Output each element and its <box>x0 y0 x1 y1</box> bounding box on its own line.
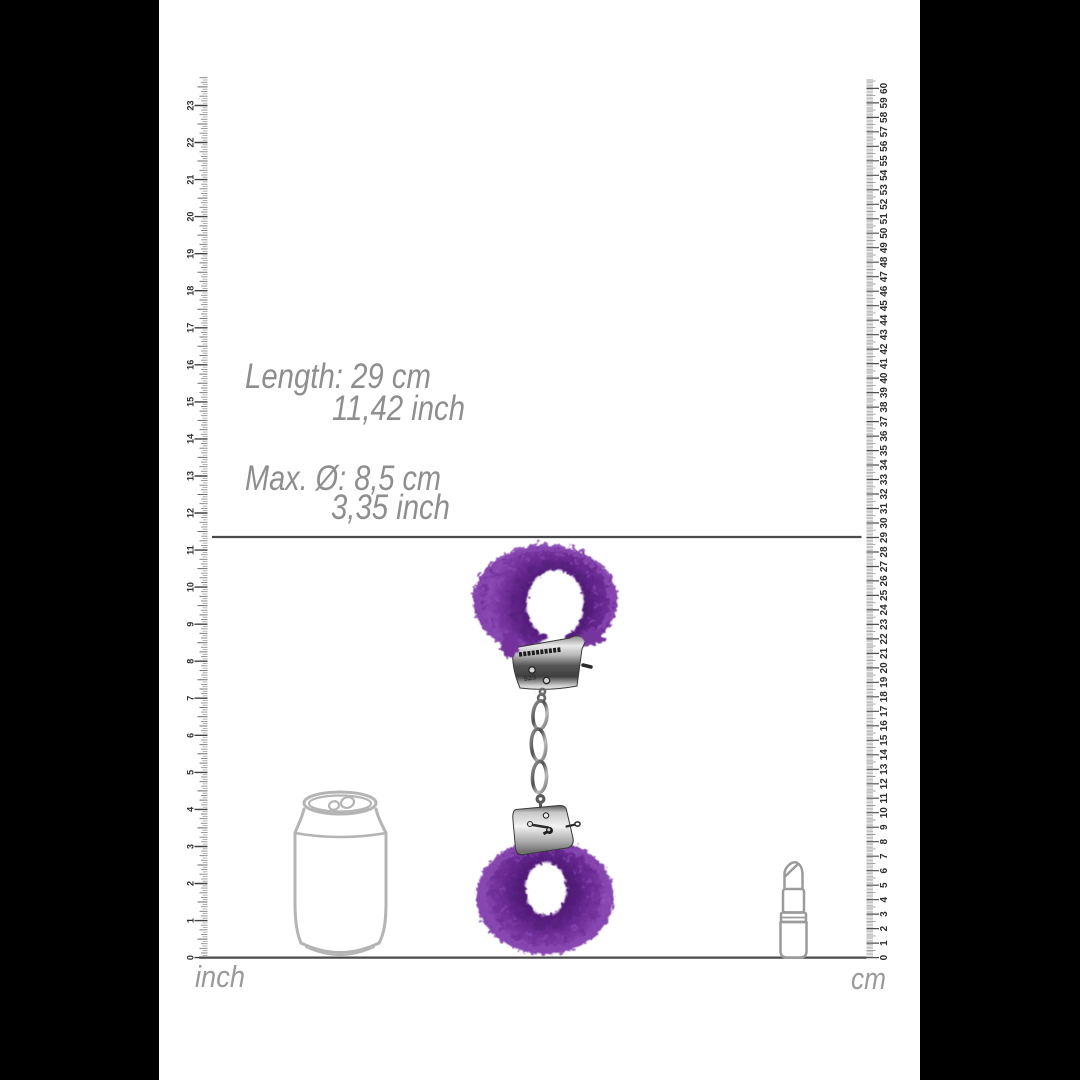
svg-text:11: 11 <box>879 792 890 803</box>
svg-text:53: 53 <box>879 184 890 196</box>
svg-text:42: 42 <box>879 343 890 355</box>
svg-text:4: 4 <box>186 807 196 812</box>
svg-text:23: 23 <box>186 100 196 110</box>
svg-text:15: 15 <box>879 734 890 746</box>
svg-text:3: 3 <box>186 844 196 849</box>
svg-text:2: 2 <box>879 925 890 931</box>
svg-text:48: 48 <box>879 256 890 268</box>
svg-text:20: 20 <box>879 662 890 674</box>
svg-text:59: 59 <box>879 97 890 109</box>
svg-text:23: 23 <box>879 618 890 630</box>
svg-text:0: 0 <box>879 954 890 960</box>
svg-text:40: 40 <box>879 372 890 384</box>
svg-text:20: 20 <box>186 212 196 222</box>
svg-text:6: 6 <box>879 867 890 873</box>
svg-text:57: 57 <box>879 126 890 138</box>
svg-text:11,42 inch: 11,42 inch <box>332 389 465 428</box>
svg-text:22: 22 <box>186 137 196 147</box>
svg-text:38: 38 <box>879 401 890 413</box>
svg-text:21: 21 <box>879 647 890 659</box>
svg-text:45: 45 <box>879 300 890 312</box>
svg-text:10: 10 <box>186 582 196 592</box>
svg-text:56: 56 <box>879 140 890 152</box>
svg-text:6: 6 <box>186 733 196 738</box>
svg-text:925: 925 <box>523 672 537 683</box>
svg-text:12: 12 <box>879 778 890 790</box>
svg-text:12: 12 <box>186 508 196 518</box>
svg-text:7: 7 <box>186 696 196 701</box>
svg-text:58: 58 <box>879 111 890 123</box>
svg-text:41: 41 <box>879 358 890 370</box>
svg-text:33: 33 <box>879 474 890 486</box>
svg-text:32: 32 <box>879 488 890 500</box>
svg-text:52: 52 <box>879 198 890 210</box>
svg-text:35: 35 <box>879 445 890 457</box>
svg-text:29: 29 <box>879 532 890 544</box>
svg-text:1: 1 <box>879 940 890 946</box>
svg-text:16: 16 <box>186 360 196 370</box>
svg-text:17: 17 <box>879 705 890 717</box>
svg-text:16: 16 <box>879 720 890 732</box>
svg-text:10: 10 <box>879 807 890 819</box>
svg-text:14: 14 <box>186 434 196 444</box>
svg-text:3: 3 <box>879 911 890 917</box>
svg-text:27: 27 <box>879 561 890 573</box>
svg-text:3,35 inch: 3,35 inch <box>331 488 450 527</box>
svg-text:19: 19 <box>186 249 196 259</box>
svg-text:39: 39 <box>879 387 890 399</box>
svg-text:14: 14 <box>879 749 890 761</box>
svg-text:49: 49 <box>879 242 890 254</box>
svg-text:8: 8 <box>186 659 196 664</box>
svg-text:21: 21 <box>186 175 196 185</box>
svg-text:55: 55 <box>879 155 890 167</box>
svg-text:51: 51 <box>879 213 890 225</box>
svg-text:inch: inch <box>195 959 245 994</box>
svg-text:15: 15 <box>186 397 196 407</box>
svg-text:13: 13 <box>879 763 890 775</box>
svg-text:34: 34 <box>879 459 890 471</box>
svg-text:50: 50 <box>879 227 890 239</box>
svg-text:37: 37 <box>879 416 890 428</box>
svg-text:22: 22 <box>879 633 890 645</box>
svg-text:5: 5 <box>879 882 890 888</box>
svg-text:9: 9 <box>186 622 196 627</box>
svg-text:25: 25 <box>879 589 890 601</box>
svg-text:30: 30 <box>879 517 890 529</box>
svg-text:11: 11 <box>186 545 196 555</box>
svg-text:44: 44 <box>879 314 890 326</box>
svg-text:cm: cm <box>851 961 886 996</box>
svg-text:8: 8 <box>879 838 890 844</box>
svg-text:36: 36 <box>879 430 890 442</box>
svg-text:9: 9 <box>879 824 890 830</box>
svg-text:18: 18 <box>879 691 890 703</box>
svg-text:13: 13 <box>186 471 196 481</box>
svg-text:1: 1 <box>186 918 196 923</box>
svg-text:0: 0 <box>186 955 196 960</box>
svg-text:43: 43 <box>879 329 890 341</box>
svg-text:18: 18 <box>186 286 196 296</box>
svg-text:2: 2 <box>186 881 196 886</box>
svg-text:7: 7 <box>879 853 890 859</box>
svg-text:28: 28 <box>879 546 890 558</box>
svg-text:46: 46 <box>879 285 890 297</box>
svg-text:60: 60 <box>879 82 890 94</box>
svg-text:5: 5 <box>186 770 196 775</box>
svg-text:17: 17 <box>186 323 196 333</box>
svg-text:54: 54 <box>879 169 890 181</box>
svg-text:31: 31 <box>879 503 890 515</box>
svg-text:26: 26 <box>879 575 890 587</box>
svg-text:19: 19 <box>879 676 890 688</box>
svg-text:47: 47 <box>879 271 890 283</box>
svg-text:4: 4 <box>879 896 890 902</box>
svg-text:24: 24 <box>879 604 890 616</box>
